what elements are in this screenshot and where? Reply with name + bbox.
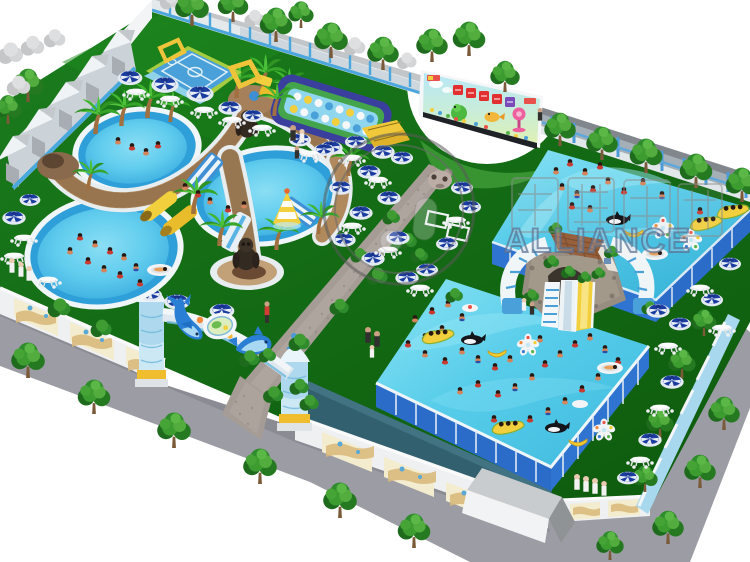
svg-text:ALLIANCE: ALLIANCE	[504, 222, 692, 260]
